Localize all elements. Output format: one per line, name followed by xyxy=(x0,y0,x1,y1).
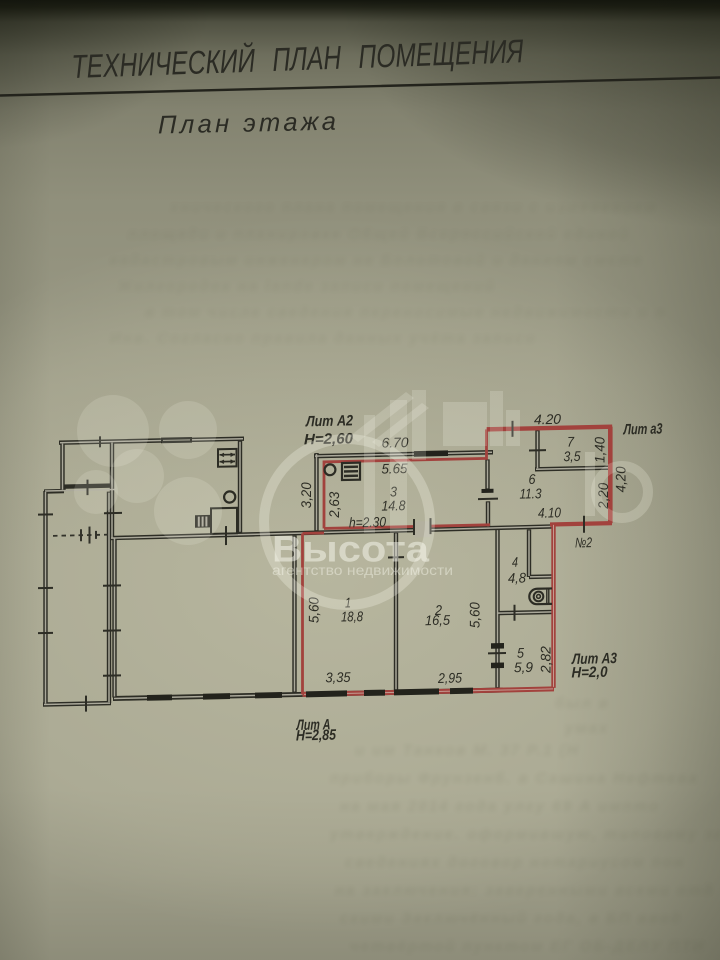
svg-text:агентство недвижимости: агентство недвижимости xyxy=(272,562,453,578)
